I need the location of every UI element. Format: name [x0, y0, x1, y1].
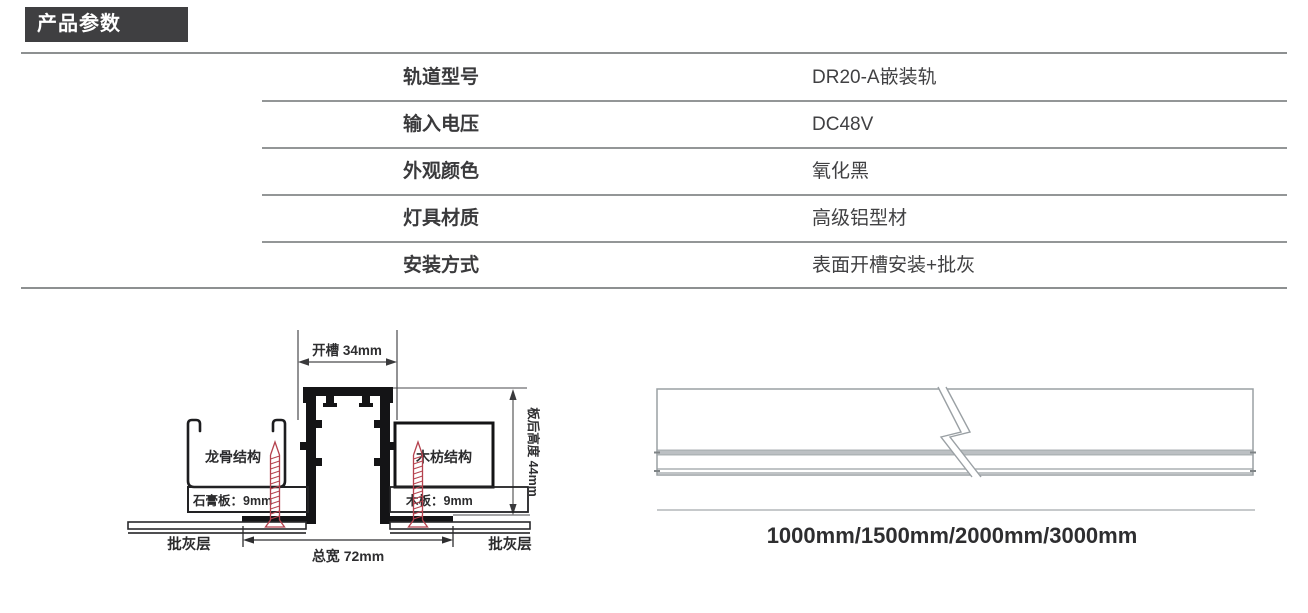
row-label: 安装方式 [403, 242, 479, 289]
total-width-label: 总宽 72mm [312, 548, 384, 564]
arrowhead-left [298, 358, 309, 366]
table-row: 输入电压 DC48V [21, 101, 1287, 148]
table-bottom-rule [21, 287, 1287, 289]
ceiling-slabs [128, 522, 530, 529]
section-title: 产品参数 [37, 13, 121, 35]
row-label: 输入电压 [403, 101, 479, 148]
rail-profile [657, 389, 1253, 475]
row-value: 表面开槽安装+批灰 [812, 242, 975, 289]
arrowhead-down [509, 504, 516, 515]
section-title-badge: 产品参数 [25, 7, 188, 42]
row-value: DR20-A嵌装轨 [812, 54, 937, 101]
rail-svg: 1000mm/1500mm/2000mm/3000mm [630, 375, 1280, 555]
wood-frame-label: 木枋结构 [415, 449, 472, 465]
spec-table: 轨道型号 DR20-A嵌装轨 输入电压 DC48V 外观颜色 氧化黑 灯具材质 … [21, 52, 1287, 290]
table-row: 轨道型号 DR20-A嵌装轨 [21, 54, 1287, 101]
arrowhead-up [509, 389, 516, 400]
cross-section-svg: 开槽 34mm 板后高度 44mm 龙骨结构 石膏板：9mm 木枋结构 [120, 320, 570, 570]
plaster-right-label: 批灰层 [488, 535, 532, 553]
screw-icon [266, 442, 285, 527]
rail-length-diagram: 1000mm/1500mm/2000mm/3000mm [630, 375, 1280, 555]
arrowhead-right [442, 536, 453, 543]
wood-board-label: 木板：9mm [405, 493, 473, 508]
board-height-label: 板后高度 44mm [526, 407, 541, 497]
arrowhead-right [386, 358, 397, 366]
slot-width-label: 开槽 34mm [312, 342, 382, 358]
table-row: 灯具材质 高级铝型材 [21, 195, 1287, 242]
keel-label: 龙骨结构 [204, 449, 261, 465]
plaster-left-label: 批灰层 [167, 535, 211, 553]
row-label: 灯具材质 [403, 195, 479, 242]
row-label: 轨道型号 [403, 54, 479, 101]
gypsum-label: 石膏板：9mm [192, 493, 272, 508]
installation-cross-section-diagram: 开槽 34mm 板后高度 44mm 龙骨结构 石膏板：9mm 木枋结构 [120, 320, 570, 570]
table-row: 安装方式 表面开槽安装+批灰 [21, 242, 1287, 289]
available-lengths-label: 1000mm/1500mm/2000mm/3000mm [767, 523, 1138, 548]
row-value: 氧化黑 [812, 148, 869, 195]
row-value: DC48V [812, 101, 873, 148]
product-spec-page: { "header": { "title": "产品参数" }, "table"… [0, 0, 1308, 613]
screws-group [266, 442, 428, 527]
arrowhead-left [243, 536, 254, 543]
row-label: 外观颜色 [403, 148, 479, 195]
row-value: 高级铝型材 [812, 195, 907, 242]
table-row: 外观颜色 氧化黑 [21, 148, 1287, 195]
